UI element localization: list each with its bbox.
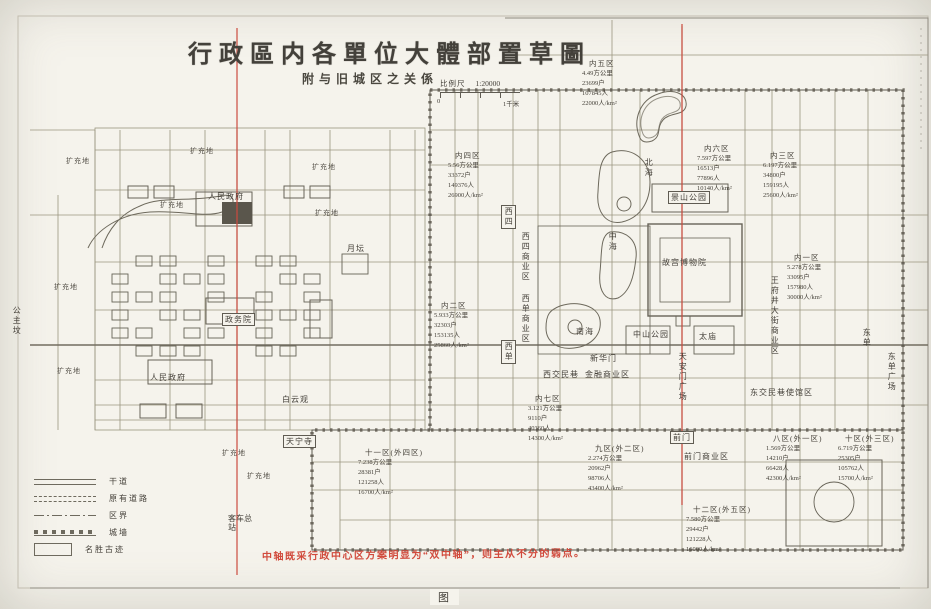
district-stat-line: 121228人 <box>686 535 751 545</box>
district-stat-line: 14210户 <box>766 454 823 464</box>
district-stat-line: 42300人/km² <box>766 474 823 484</box>
expansion-land-label: 扩充地 <box>222 448 246 458</box>
place-label: 北海 <box>644 158 653 178</box>
district-stat-line: 14300人/km² <box>528 434 563 444</box>
district-stat-line: 33095户 <box>787 273 822 283</box>
place-label: 故宫博物院 <box>662 258 707 267</box>
place-label: 东单 <box>862 328 871 348</box>
district-stat-line: 7.580方公里 <box>686 515 751 525</box>
expansion-land-label: 扩充地 <box>57 366 81 376</box>
district-stat-block: 内三区6.197方公里34800户159195人25600人/km² <box>763 150 798 201</box>
place-label: 景山公园 <box>668 191 710 204</box>
place-label: 西单 <box>501 340 516 364</box>
legend-row: 干道 <box>34 473 149 490</box>
expansion-land-label: 扩充地 <box>247 471 271 481</box>
map-legend: 干道原有道路区界城墙名胜古迹 <box>34 473 149 558</box>
legend-row: 原有道路 <box>34 490 149 507</box>
district-stat-block: 十二区(外五区)7.580方公里29442户121228人16000人/km² <box>686 504 751 555</box>
district-stat-block: 十区(外三区)6.719方公里25305户105762人15700人/km² <box>838 433 895 484</box>
district-name: 内六区 <box>704 143 732 154</box>
district-stat-line: 5.56方公里 <box>448 161 483 171</box>
district-stat-block: 内二区5.933方公里32303户153135人25860人/km² <box>434 300 469 351</box>
place-label: 新华门 <box>590 354 617 363</box>
district-stat-line: 121258人 <box>358 478 423 488</box>
district-name: 内七区 <box>535 393 563 404</box>
legend-symbol-boundary <box>34 515 96 516</box>
district-stat-block: 内一区5.278方公里33095户157980人30000人/km² <box>787 252 822 303</box>
legend-row: 区界 <box>34 507 149 524</box>
district-stat-line: 25860人/km² <box>434 341 469 351</box>
place-label: 公主坟 <box>12 306 21 336</box>
district-stat-line: 2.274方公里 <box>588 454 645 464</box>
expansion-land-label: 扩充地 <box>190 146 214 156</box>
expansion-land-label: 扩充地 <box>315 208 339 218</box>
district-stat-block: 内六区7.597方公里16513户77896人10140人/km² <box>697 143 732 194</box>
district-name: 内三区 <box>770 150 798 161</box>
place-label: 西四 <box>501 205 516 229</box>
place-label: 太庙 <box>699 332 717 341</box>
expansion-land-label: 扩充地 <box>54 282 78 292</box>
place-label: 东交民巷使馆区 <box>750 388 813 397</box>
legend-label: 干道 <box>109 476 129 487</box>
district-stat-line: 25600人/km² <box>763 191 798 201</box>
district-stat-line: 25305户 <box>838 454 895 464</box>
district-stat-line: 26900人/km² <box>448 191 483 201</box>
district-stat-line: 34800户 <box>763 171 798 181</box>
district-stat-line: 5.933方公里 <box>434 311 469 321</box>
district-stat-line: 149376人 <box>448 181 483 191</box>
district-name: 九区(外二区) <box>595 443 645 454</box>
district-name: 十一区(外四区) <box>365 447 423 458</box>
district-stat-block: 内七区3.121方公里9110户40360人14300人/km² <box>528 393 563 444</box>
district-stat-line: 1.569方公里 <box>766 444 823 454</box>
place-label: 西单商业区 <box>521 294 530 344</box>
district-stat-line: 105762人 <box>838 464 895 474</box>
district-name: 内四区 <box>455 150 483 161</box>
district-stat-line: 7.597方公里 <box>697 154 732 164</box>
legend-label: 区界 <box>109 510 129 521</box>
legend-symbol-monument <box>34 543 72 556</box>
legend-symbol-wall <box>34 530 96 536</box>
district-stat-line: 153135人 <box>434 331 469 341</box>
district-stat-block: 十一区(外四区)7.238方公里28381户121258人16700人/km² <box>358 447 423 498</box>
district-stat-line: 15700人/km² <box>838 474 895 484</box>
place-label: 西四商业区 <box>521 232 530 282</box>
page-caption: 图 <box>430 589 459 605</box>
place-label: 月坛 <box>347 244 365 253</box>
legend-row: 城墙 <box>34 524 149 541</box>
place-label: 金融商业区 <box>585 370 630 379</box>
district-stat-line: 6.197方公里 <box>763 161 798 171</box>
district-stat-line: 20962户 <box>588 464 645 474</box>
place-label: 东单广场 <box>887 352 896 392</box>
place-label: 南海 <box>576 327 594 336</box>
district-stat-line: 98706人 <box>588 474 645 484</box>
district-stat-line: 66428人 <box>766 464 823 474</box>
district-stat-line: 28381户 <box>358 468 423 478</box>
district-stat-line: 43400人/km² <box>588 484 645 494</box>
place-label: 客车总站 <box>228 514 254 532</box>
place-label: 政务院 <box>222 313 255 326</box>
place-label: 前门商业区 <box>684 452 729 461</box>
legend-row: 名胜古迹 <box>34 541 149 558</box>
place-label: 天宁寺 <box>283 435 316 448</box>
district-name: 内一区 <box>794 252 822 263</box>
district-name: 内二区 <box>441 300 469 311</box>
district-stat-line: 32303户 <box>434 321 469 331</box>
district-name: 内五区 <box>589 58 617 69</box>
legend-label: 城墙 <box>109 527 129 538</box>
district-stat-line: 9110户 <box>528 414 563 424</box>
place-label: 人民政府 <box>208 192 244 201</box>
district-stat-line: 157980人 <box>787 283 822 293</box>
district-name: 八区(外一区) <box>773 433 823 444</box>
place-label: 王府井大街商业区 <box>770 276 779 356</box>
district-stat-line: 3.121方公里 <box>528 404 563 414</box>
legend-symbol-trunk <box>34 479 96 485</box>
district-stat-line: 22000人/km² <box>582 99 617 109</box>
legend-symbol-existing <box>34 496 96 502</box>
expansion-land-label: 扩充地 <box>66 156 90 166</box>
district-stat-block: 九区(外二区)2.274方公里20962户98706人43400人/km² <box>588 443 645 494</box>
district-stat-line: 16000人/km² <box>686 545 751 555</box>
district-stat-line: 23699户 <box>582 79 617 89</box>
district-stat-line: 159195人 <box>763 181 798 191</box>
scanned-map-page: 行政區内各單位大體部置草圖 附与旧城区之关係 比例尺1:20000 0 1千米 … <box>0 0 931 609</box>
district-stat-line: 29442户 <box>686 525 751 535</box>
place-label: 西交民巷 <box>543 370 579 379</box>
district-stat-line: 107845人 <box>582 89 617 99</box>
district-name: 十区(外三区) <box>845 433 895 444</box>
district-stat-line: 16513户 <box>697 164 732 174</box>
place-label: 白云观 <box>282 395 309 404</box>
legend-label: 名胜古迹 <box>85 544 125 555</box>
district-name: 十二区(外五区) <box>693 504 751 515</box>
place-label: 天安门广场 <box>678 352 687 402</box>
place-label: 中山公园 <box>633 330 669 339</box>
district-stat-line: 7.238方公里 <box>358 458 423 468</box>
district-stat-line: 40360人 <box>528 424 563 434</box>
district-stat-block: 内四区5.56方公里33372户149376人26900人/km² <box>448 150 483 201</box>
place-label: 前门 <box>670 431 694 444</box>
district-stat-line: 77896人 <box>697 174 732 184</box>
district-stat-line: 4.49方公里 <box>582 69 617 79</box>
district-stat-line: 30000人/km² <box>787 293 822 303</box>
district-stat-line: 33372户 <box>448 171 483 181</box>
district-stat-block: 八区(外一区)1.569方公里14210户66428人42300人/km² <box>766 433 823 484</box>
district-stat-line: 16700人/km² <box>358 488 423 498</box>
district-stat-block: 内五区4.49方公里23699户107845人22000人/km² <box>582 58 617 109</box>
expansion-land-label: 扩充地 <box>160 200 184 210</box>
district-stat-line: 5.278方公里 <box>787 263 822 273</box>
place-label: 人民政府 <box>150 373 186 382</box>
legend-label: 原有道路 <box>109 493 149 504</box>
expansion-land-label: 扩充地 <box>312 162 336 172</box>
district-stat-line: 6.719方公里 <box>838 444 895 454</box>
place-label: 中海 <box>608 232 617 252</box>
